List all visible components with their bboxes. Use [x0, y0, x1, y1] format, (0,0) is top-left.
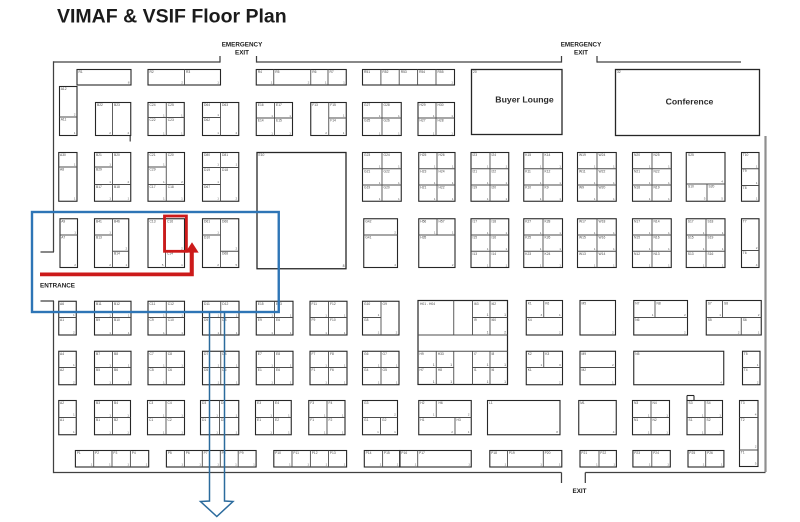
svg-text:W17: W17 — [579, 219, 586, 223]
svg-text:1: 1 — [649, 247, 651, 251]
svg-text:M9: M9 — [582, 352, 587, 356]
svg-text:1: 1 — [452, 181, 454, 185]
svg-text:1: 1 — [290, 331, 292, 335]
svg-text:4: 4 — [756, 263, 758, 267]
svg-text:2: 2 — [235, 197, 237, 201]
svg-text:I24: I24 — [492, 153, 497, 157]
svg-text:E3: E3 — [257, 401, 261, 405]
svg-text:1: 1 — [434, 181, 436, 185]
svg-text:1: 1 — [163, 431, 165, 435]
svg-text:2: 2 — [109, 263, 111, 267]
svg-text:E7: E7 — [258, 352, 262, 356]
svg-text:1: 1 — [506, 197, 508, 201]
svg-text:1: 1 — [73, 363, 75, 367]
svg-text:E15: E15 — [258, 302, 264, 306]
svg-text:1: 1 — [649, 231, 651, 235]
svg-text:K6: K6 — [545, 301, 549, 305]
svg-text:1: 1 — [434, 231, 436, 235]
svg-text:1: 1 — [540, 165, 542, 169]
svg-text:2: 2 — [451, 430, 453, 434]
svg-text:D7: D7 — [204, 352, 208, 356]
svg-text:1: 1 — [163, 363, 165, 367]
svg-text:P22: P22 — [600, 451, 606, 455]
svg-text:1: 1 — [506, 263, 508, 267]
svg-text:I19: I19 — [473, 186, 478, 190]
svg-text:5: 5 — [721, 197, 723, 201]
svg-text:1: 1 — [719, 431, 721, 435]
svg-text:ENTRANCE: ENTRANCE — [40, 283, 75, 290]
svg-text:1: 1 — [396, 381, 398, 385]
svg-text:C6: C6 — [168, 368, 172, 372]
svg-text:D67: D67 — [204, 185, 210, 189]
svg-text:E8: E8 — [276, 352, 280, 356]
svg-text:K3: K3 — [545, 352, 549, 356]
svg-text:S5: S5 — [708, 318, 712, 322]
svg-text:S17: S17 — [688, 219, 694, 223]
svg-text:I60: I60 — [492, 318, 497, 322]
svg-text:1: 1 — [128, 313, 130, 317]
svg-text:1: 1 — [468, 463, 470, 467]
svg-text:1: 1 — [667, 463, 669, 467]
svg-text:1: 1 — [451, 114, 453, 118]
svg-text:1: 1 — [163, 131, 165, 135]
svg-text:1: 1 — [434, 197, 436, 201]
svg-text:1: 1 — [487, 263, 489, 267]
svg-text:P3: P3 — [113, 451, 117, 455]
svg-text:K1: K1 — [528, 301, 532, 305]
svg-text:1: 1 — [433, 114, 435, 118]
svg-text:1: 1 — [722, 247, 724, 251]
svg-text:K25: K25 — [525, 236, 531, 240]
svg-text:2: 2 — [325, 131, 327, 135]
svg-text:1: 1 — [344, 331, 346, 335]
svg-text:D63: D63 — [222, 103, 228, 107]
svg-text:F7: F7 — [312, 352, 316, 356]
svg-text:C16: C16 — [167, 219, 173, 223]
svg-text:A7: A7 — [61, 236, 65, 240]
svg-text:1: 1 — [218, 313, 220, 317]
svg-text:1: 1 — [163, 163, 165, 167]
svg-text:H22: H22 — [439, 186, 445, 190]
svg-text:2: 2 — [612, 363, 614, 367]
svg-text:EXIT: EXIT — [573, 488, 587, 495]
svg-text:N6: N6 — [635, 318, 639, 322]
svg-text:1: 1 — [703, 463, 705, 467]
svg-text:N22: N22 — [654, 169, 660, 173]
svg-text:1: 1 — [398, 131, 400, 135]
svg-text:1: 1 — [596, 463, 598, 467]
svg-text:I18: I18 — [492, 219, 497, 223]
svg-text:D1: D1 — [202, 418, 206, 422]
svg-text:D12: D12 — [222, 302, 228, 306]
svg-text:T6: T6 — [743, 251, 747, 255]
svg-text:C25: C25 — [168, 103, 174, 107]
svg-text:2: 2 — [684, 313, 686, 317]
svg-text:2: 2 — [125, 247, 127, 251]
svg-text:K11: K11 — [525, 169, 531, 173]
svg-text:T10: T10 — [743, 153, 749, 157]
svg-text:1: 1 — [271, 81, 273, 85]
svg-text:B21: B21 — [96, 153, 102, 157]
svg-text:G6: G6 — [364, 352, 369, 356]
svg-text:1: 1 — [163, 313, 165, 317]
svg-text:1: 1 — [379, 197, 381, 201]
svg-text:D62: D62 — [204, 118, 210, 122]
svg-text:D81: D81 — [222, 153, 228, 157]
svg-text:1: 1 — [719, 413, 721, 417]
svg-text:B3: B3 — [96, 401, 100, 405]
svg-text:B11: B11 — [96, 302, 102, 306]
svg-text:2: 2 — [181, 81, 183, 85]
svg-text:A4: A4 — [60, 352, 64, 356]
svg-text:1: 1 — [594, 263, 596, 267]
svg-text:R51: R51 — [364, 70, 370, 74]
svg-text:G42: G42 — [365, 219, 371, 223]
svg-text:1: 1 — [288, 431, 290, 435]
svg-text:1: 1 — [163, 113, 165, 117]
svg-text:H9: H9 — [420, 352, 424, 356]
svg-text:I23: I23 — [473, 153, 478, 157]
svg-text:W24: W24 — [599, 153, 606, 157]
svg-text:T1: T1 — [741, 451, 745, 455]
svg-text:EXIT: EXIT — [574, 50, 588, 57]
svg-text:1: 1 — [487, 331, 489, 335]
svg-text:1: 1 — [540, 247, 542, 251]
svg-text:1: 1 — [559, 247, 561, 251]
svg-text:K1: K1 — [528, 368, 532, 372]
svg-text:N19: N19 — [654, 186, 660, 190]
svg-text:1: 1 — [379, 165, 381, 169]
svg-text:E6: E6 — [276, 368, 280, 372]
svg-text:I16: I16 — [492, 236, 497, 240]
svg-text:N16: N16 — [654, 236, 660, 240]
svg-text:T2: T2 — [741, 418, 745, 422]
svg-text:2: 2 — [755, 445, 757, 449]
svg-text:1: 1 — [434, 165, 436, 169]
svg-text:1: 1 — [181, 197, 183, 201]
svg-text:1: 1 — [218, 363, 220, 367]
svg-text:C11: C11 — [150, 302, 156, 306]
svg-text:N21: N21 — [634, 169, 640, 173]
svg-text:1: 1 — [540, 263, 542, 267]
svg-text:1: 1 — [721, 463, 723, 467]
svg-text:H8: H8 — [438, 368, 442, 372]
svg-text:T4: T4 — [744, 368, 748, 372]
svg-text:A2: A2 — [60, 368, 64, 372]
svg-text:VIMAF & VSIF Floor Plan: VIMAF & VSIF Floor Plan — [57, 6, 287, 28]
svg-text:P13: P13 — [330, 451, 336, 455]
svg-text:A6: A6 — [60, 302, 64, 306]
svg-text:1: 1 — [433, 380, 435, 384]
svg-text:1: 1 — [613, 197, 615, 201]
svg-text:B13: B13 — [96, 236, 102, 240]
svg-text:8: 8 — [556, 430, 558, 434]
svg-text:1: 1 — [506, 247, 508, 251]
svg-text:T5: T5 — [744, 352, 748, 356]
svg-text:1: 1 — [378, 331, 380, 335]
svg-text:P1: P1 — [77, 451, 81, 455]
svg-text:1: 1 — [236, 331, 238, 335]
svg-text:1: 1 — [397, 463, 399, 467]
svg-text:A2: A2 — [60, 401, 64, 405]
svg-text:I1: I1 — [474, 368, 477, 372]
svg-text:N7: N7 — [635, 301, 639, 305]
svg-text:2: 2 — [73, 331, 75, 335]
svg-text:1: 1 — [649, 197, 651, 201]
svg-text:1: 1 — [722, 263, 724, 267]
svg-text:S8: S8 — [724, 301, 728, 305]
svg-text:S13: S13 — [688, 252, 694, 256]
svg-text:1: 1 — [181, 413, 183, 417]
svg-text:1: 1 — [506, 231, 508, 235]
svg-text:C1: C1 — [149, 418, 153, 422]
svg-text:P16: P16 — [401, 451, 407, 455]
svg-text:1: 1 — [668, 231, 670, 235]
svg-text:W13: W13 — [579, 252, 586, 256]
svg-text:P10: P10 — [275, 451, 281, 455]
svg-text:R6: R6 — [312, 70, 316, 74]
svg-text:B20: B20 — [114, 153, 120, 157]
svg-text:H6: H6 — [439, 401, 443, 405]
svg-text:4: 4 — [394, 263, 396, 267]
svg-text:I17: I17 — [473, 219, 478, 223]
svg-text:1: 1 — [398, 181, 400, 185]
svg-text:1: 1 — [181, 263, 183, 267]
svg-text:C4: C4 — [168, 401, 172, 405]
svg-text:2: 2 — [756, 246, 758, 250]
svg-text:1: 1 — [236, 313, 238, 317]
svg-text:1: 1 — [703, 247, 705, 251]
svg-text:S25: S25 — [688, 153, 694, 157]
svg-text:D19: D19 — [204, 168, 210, 172]
svg-text:I7: I7 — [474, 352, 477, 356]
svg-text:N3: N3 — [634, 401, 638, 405]
svg-text:K14: K14 — [545, 153, 551, 157]
svg-text:1: 1 — [722, 231, 724, 235]
svg-text:1: 1 — [450, 363, 452, 367]
svg-text:H29: H29 — [420, 103, 426, 107]
svg-text:H30: H30 — [438, 103, 444, 107]
svg-text:5: 5 — [235, 263, 237, 267]
svg-text:I6: I6 — [492, 368, 495, 372]
svg-text:F14: F14 — [330, 119, 336, 123]
svg-text:R55: R55 — [438, 70, 444, 74]
svg-text:1: 1 — [703, 231, 705, 235]
svg-text:2: 2 — [74, 263, 76, 267]
svg-text:G19: G19 — [364, 186, 370, 190]
svg-text:T7: T7 — [743, 219, 747, 223]
svg-text:1: 1 — [344, 363, 346, 367]
svg-text:F2: F2 — [329, 418, 333, 422]
svg-text:1: 1 — [452, 165, 454, 169]
svg-text:1: 1 — [271, 331, 273, 335]
svg-text:1: 1 — [452, 197, 454, 201]
svg-text:N8: N8 — [657, 301, 661, 305]
svg-text:W16: W16 — [599, 236, 606, 240]
svg-text:1: 1 — [199, 463, 201, 467]
svg-text:1: 1 — [342, 431, 344, 435]
svg-text:S16: S16 — [708, 252, 714, 256]
svg-text:1: 1 — [452, 231, 454, 235]
svg-text:C29: C29 — [150, 168, 156, 172]
svg-text:T8: T8 — [743, 186, 747, 190]
svg-text:1: 1 — [559, 197, 561, 201]
svg-text:1: 1 — [559, 165, 561, 169]
svg-text:C18: C18 — [168, 185, 174, 189]
svg-text:B41: B41 — [96, 219, 102, 223]
svg-text:K27: K27 — [525, 219, 531, 223]
svg-text:B17: B17 — [96, 185, 102, 189]
svg-text:EXIT: EXIT — [235, 50, 249, 57]
svg-text:1: 1 — [236, 363, 238, 367]
svg-text:1: 1 — [325, 363, 327, 367]
svg-text:A12: A12 — [61, 87, 67, 91]
svg-text:1: 1 — [668, 263, 670, 267]
svg-text:B1: B1 — [96, 418, 100, 422]
svg-text:1: 1 — [217, 113, 219, 117]
svg-text:1: 1 — [127, 463, 129, 467]
svg-text:B22: B22 — [97, 103, 103, 107]
svg-text:G25: G25 — [364, 119, 370, 123]
svg-text:1: 1 — [127, 197, 129, 201]
svg-text:1: 1 — [109, 313, 111, 317]
svg-text:B46: B46 — [114, 219, 120, 223]
svg-text:K9: K9 — [545, 186, 549, 190]
svg-text:1: 1 — [128, 331, 130, 335]
svg-text:R5: R5 — [275, 70, 279, 74]
svg-text:E6: E6 — [276, 318, 280, 322]
svg-text:1: 1 — [289, 114, 291, 118]
svg-text:1: 1 — [613, 181, 615, 185]
svg-text:1: 1 — [324, 431, 326, 435]
svg-text:P6: P6 — [186, 451, 190, 455]
svg-text:N13: N13 — [654, 252, 660, 256]
svg-text:N25: N25 — [654, 153, 660, 157]
svg-text:1: 1 — [128, 381, 130, 385]
svg-text:1: 1 — [487, 247, 489, 251]
svg-text:W22: W22 — [599, 169, 606, 173]
svg-text:T9: T9 — [743, 169, 747, 173]
svg-text:K10: K10 — [525, 186, 531, 190]
svg-text:E17: E17 — [276, 103, 282, 107]
svg-text:1: 1 — [451, 131, 453, 135]
svg-text:1: 1 — [216, 431, 218, 435]
svg-text:E2: E2 — [275, 418, 279, 422]
svg-text:1: 1 — [613, 263, 615, 267]
svg-text:P24: P24 — [653, 451, 659, 455]
svg-text:1: 1 — [109, 381, 111, 385]
svg-text:5: 5 — [162, 263, 164, 267]
svg-text:1: 1 — [648, 431, 650, 435]
svg-text:G24: G24 — [384, 153, 390, 157]
svg-text:W15: W15 — [579, 236, 586, 240]
svg-text:D61: D61 — [204, 219, 210, 223]
svg-text:K26: K26 — [545, 236, 551, 240]
svg-text:1: 1 — [127, 431, 129, 435]
svg-text:1: 1 — [217, 163, 219, 167]
svg-text:K12: K12 — [545, 169, 551, 173]
svg-text:1: 1 — [218, 381, 220, 385]
svg-text:1: 1 — [433, 131, 435, 135]
svg-text:1: 1 — [379, 131, 381, 135]
svg-text:C23: C23 — [168, 118, 174, 122]
svg-text:B9: B9 — [96, 318, 100, 322]
svg-text:1: 1 — [344, 463, 346, 467]
svg-text:1: 1 — [758, 331, 760, 335]
svg-text:20: 20 — [473, 70, 477, 74]
svg-text:1: 1 — [506, 181, 508, 185]
svg-text:1: 1 — [613, 463, 615, 467]
svg-text:1: 1 — [559, 181, 561, 185]
svg-text:C13: C13 — [150, 219, 156, 223]
svg-text:1: 1 — [109, 363, 111, 367]
svg-text:5: 5 — [704, 197, 706, 201]
svg-text:N4: N4 — [653, 401, 657, 405]
svg-text:R52: R52 — [382, 70, 388, 74]
svg-text:F6: F6 — [330, 368, 334, 372]
svg-text:S3: S3 — [689, 401, 693, 405]
svg-text:H23: H23 — [420, 169, 426, 173]
svg-text:P18: P18 — [491, 451, 497, 455]
svg-text:P20: P20 — [545, 451, 551, 455]
svg-text:G2: G2 — [382, 418, 387, 422]
svg-text:E1: E1 — [257, 418, 261, 422]
svg-text:1: 1 — [109, 163, 111, 167]
svg-text:1: 1 — [343, 114, 345, 118]
svg-text:1: 1 — [652, 313, 654, 317]
svg-text:1: 1 — [668, 181, 670, 185]
svg-text:1: 1 — [236, 381, 238, 385]
svg-text:F9: F9 — [312, 318, 316, 322]
svg-text:1: 1 — [398, 114, 400, 118]
svg-text:2: 2 — [127, 180, 129, 184]
svg-text:1: 1 — [325, 331, 327, 335]
svg-text:F11: F11 — [312, 302, 318, 306]
svg-text:2: 2 — [394, 231, 396, 235]
svg-text:1: 1 — [91, 463, 93, 467]
svg-text:1: 1 — [163, 197, 165, 201]
svg-text:R2: R2 — [150, 70, 154, 74]
svg-text:R1: R1 — [79, 70, 83, 74]
svg-text:S15: S15 — [688, 236, 694, 240]
svg-text:G23: G23 — [364, 153, 370, 157]
svg-text:H35: H35 — [420, 236, 426, 240]
svg-text:1: 1 — [307, 463, 309, 467]
svg-text:E10: E10 — [259, 153, 265, 157]
svg-text:1: 1 — [73, 313, 75, 317]
svg-text:H1: H1 — [420, 418, 424, 422]
svg-text:A30: A30 — [60, 153, 66, 157]
svg-text:S20: S20 — [709, 185, 715, 189]
svg-text:H01 - H04: H01 - H04 — [420, 302, 435, 306]
svg-text:B14: B14 — [114, 252, 120, 256]
svg-text:1: 1 — [396, 363, 398, 367]
svg-text:H25: H25 — [420, 153, 426, 157]
svg-text:2: 2 — [74, 113, 76, 117]
svg-text:1: 1 — [540, 363, 542, 367]
svg-text:1: 1 — [613, 165, 615, 169]
svg-text:2: 2 — [684, 331, 686, 335]
svg-text:1: 1 — [163, 331, 165, 335]
svg-text:1: 1 — [648, 413, 650, 417]
svg-text:1: 1 — [109, 231, 111, 235]
svg-text:2: 2 — [738, 331, 740, 335]
svg-text:G27: G27 — [364, 103, 370, 107]
svg-text:2: 2 — [73, 380, 75, 384]
svg-text:B18: B18 — [114, 185, 120, 189]
svg-text:H24: H24 — [439, 169, 445, 173]
svg-text:1: 1 — [270, 431, 272, 435]
